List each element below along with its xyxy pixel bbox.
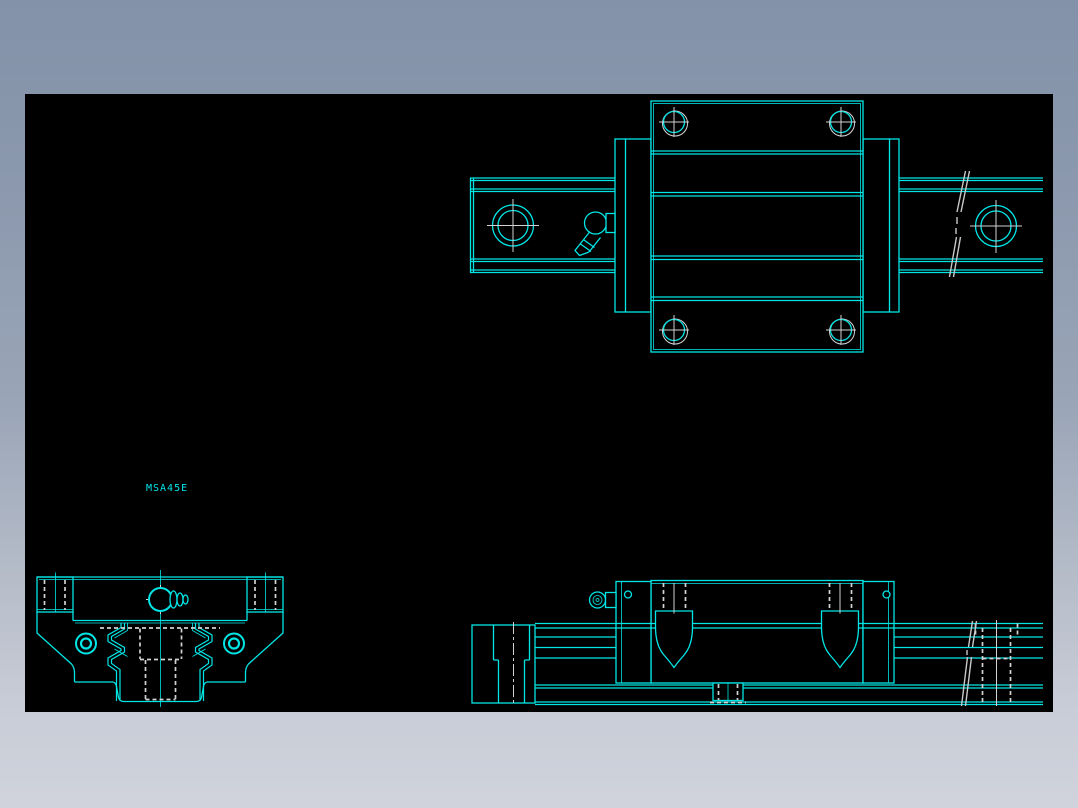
grease-fitting-front	[146, 585, 188, 614]
part-label: MSA45E	[146, 483, 188, 494]
break-line	[962, 621, 977, 706]
cad-drawing	[25, 94, 1053, 712]
hidden-hole	[976, 620, 1018, 706]
plan-view	[470, 101, 1043, 352]
end-view	[37, 570, 283, 707]
side-elevation-view	[472, 581, 1043, 707]
drawing-viewport[interactable]: MSA45E	[25, 94, 1053, 712]
app-window: MSA45E	[0, 0, 1078, 808]
grease-fitting-side	[590, 592, 617, 608]
grease-fitting-plan	[575, 212, 615, 256]
